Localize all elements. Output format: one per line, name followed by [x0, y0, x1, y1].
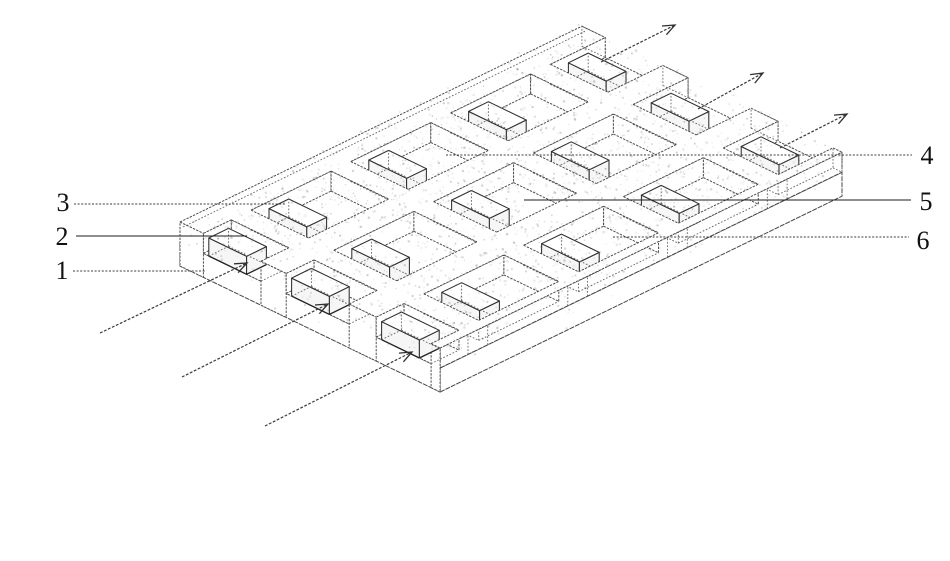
svg-text:1: 1 [56, 256, 69, 285]
svg-text:6: 6 [917, 226, 930, 255]
svg-text:2: 2 [56, 222, 69, 251]
svg-text:3: 3 [57, 188, 70, 217]
svg-text:5: 5 [920, 187, 933, 216]
svg-text:4: 4 [921, 141, 934, 170]
